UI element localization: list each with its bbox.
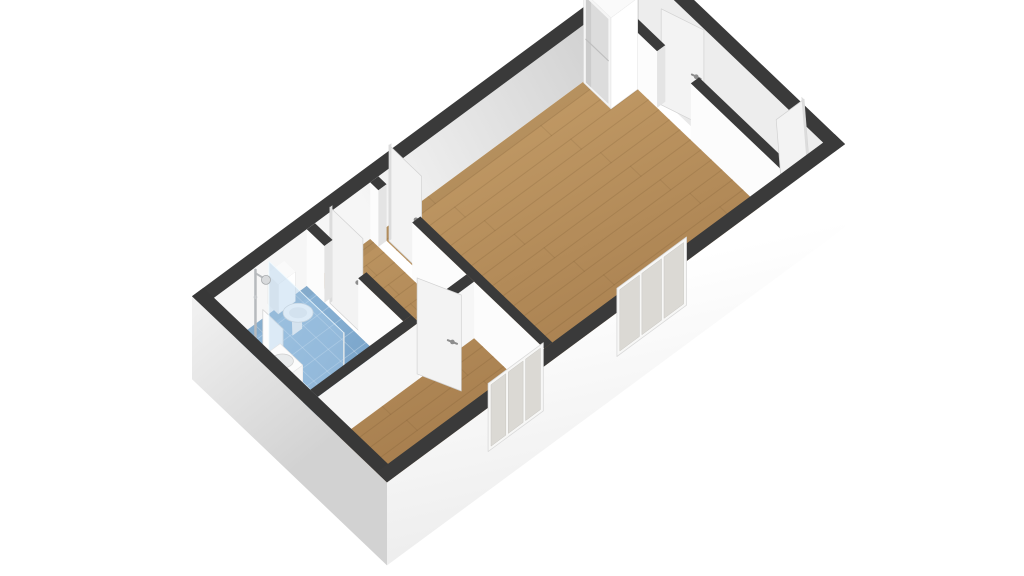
screenshot-root (0, 0, 1024, 576)
door-bedroom (417, 278, 461, 391)
floorplan-canvas (0, 0, 1024, 576)
